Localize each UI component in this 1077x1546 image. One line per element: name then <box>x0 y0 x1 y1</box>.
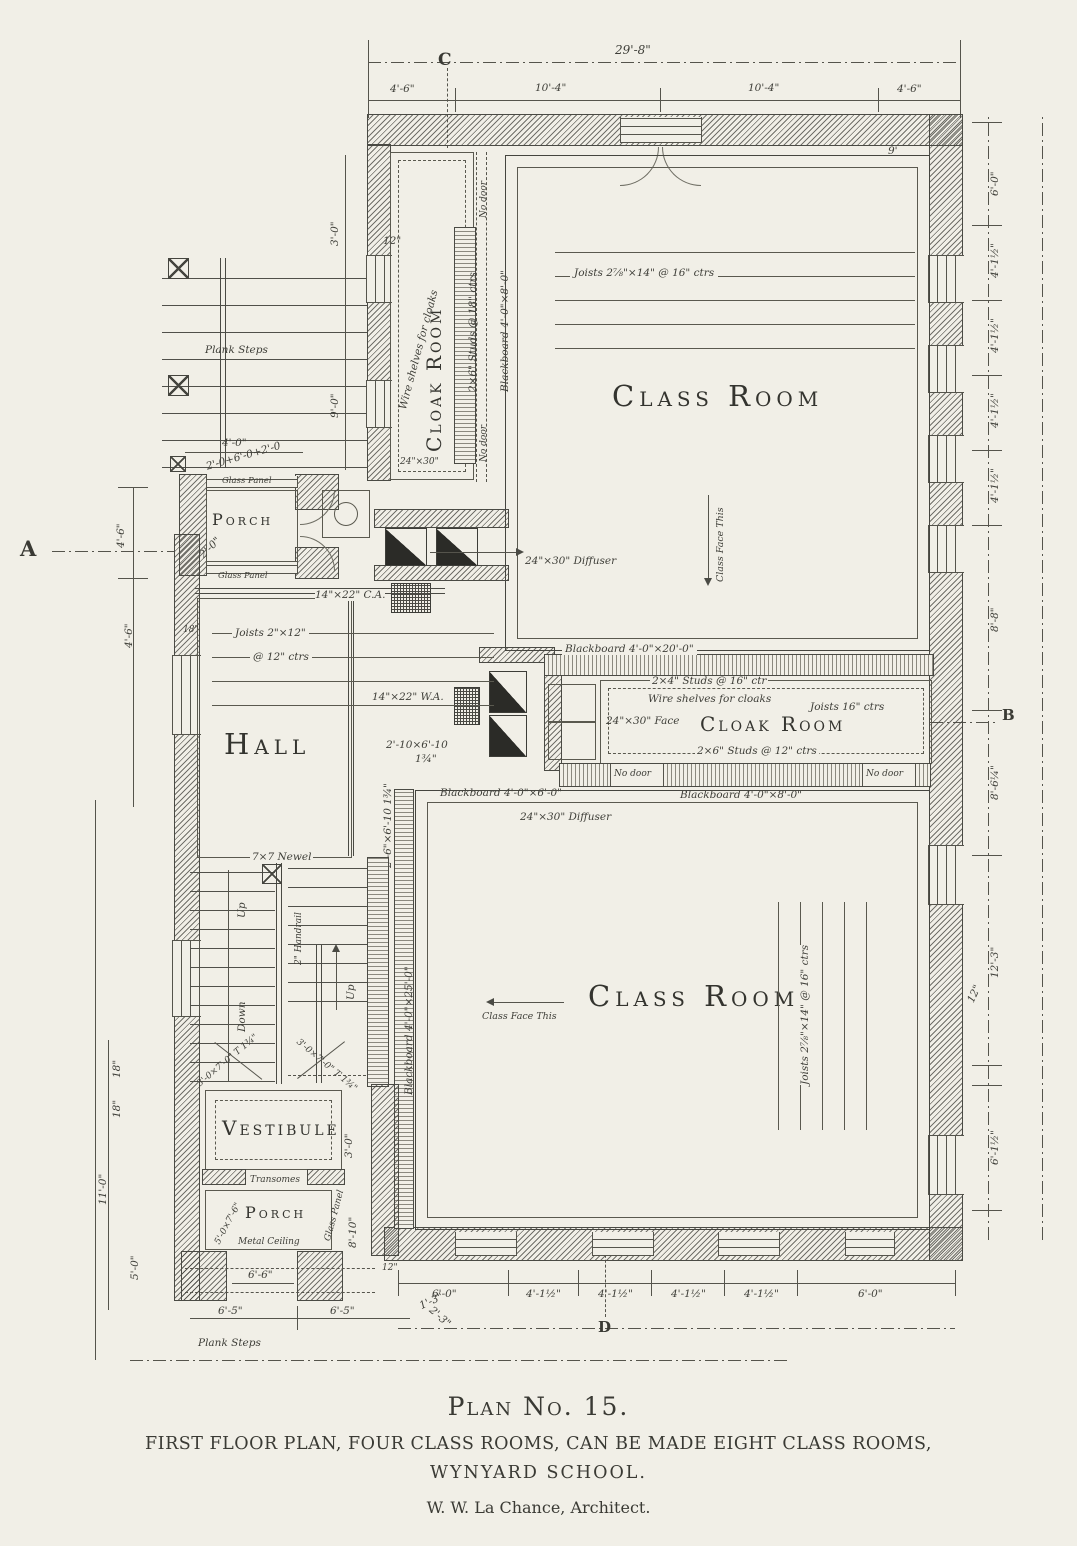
closet-box <box>548 684 596 722</box>
dim-6-6: 6'-6" <box>248 1270 273 1281</box>
dim-line-steps <box>345 155 346 470</box>
dim-line-bottom-overall <box>398 1328 955 1329</box>
dim-2-3: 2'-3" <box>427 1305 452 1329</box>
class-face-bottom: Class Face This <box>482 1012 557 1022</box>
dim-tick <box>972 375 1002 376</box>
room-porch-top: Porch <box>212 512 273 528</box>
dim-line-6-5 <box>190 1318 410 1319</box>
dim-3-0-vestibule: 3'-0" <box>344 1133 355 1158</box>
diffuser-label-top: 24"×30" Diffuser <box>525 556 616 567</box>
step-post <box>170 456 186 472</box>
dim-line-right-overall <box>1042 115 1043 1240</box>
plan-number-title: Plan No. 15. <box>0 1392 1077 1421</box>
wall-left-upper <box>368 145 390 480</box>
door-2-10: 2'-10×6'-10 <box>386 740 448 751</box>
dim-top-4: 4'-6" <box>897 84 922 95</box>
class-face-arrow-top <box>708 495 709 580</box>
down-label: Down <box>237 1002 248 1033</box>
basement-window <box>592 1232 654 1256</box>
section-marker-c: C <box>438 50 452 70</box>
dim-tick <box>118 487 148 488</box>
dim-line-left-outer <box>95 800 96 1360</box>
dim-bottom-3: 4'-1½" <box>598 1289 633 1300</box>
plank-steps-label-bottom: Plank Steps <box>198 1338 261 1349</box>
joists-16: Joists 16" ctrs <box>810 702 884 713</box>
furnace-wall <box>375 510 508 527</box>
dim-line-6-6 <box>232 1283 294 1284</box>
newel-label: 7×7 Newel <box>250 852 313 863</box>
section-marker-a: A <box>20 536 36 561</box>
transomes-label: Transomes <box>250 1176 300 1185</box>
joist-lines-top <box>555 237 915 349</box>
plan-subtitle-line1: FIRST FLOOR PLAN, FOUR CLASS ROOMS, CAN … <box>0 1434 1077 1454</box>
dim-bottom-5: 4'-1½" <box>744 1289 779 1300</box>
window <box>366 255 392 303</box>
class-face-top: Class Face This <box>716 507 726 582</box>
porch-door-swing <box>300 536 335 571</box>
dim-right-1: 6'-0" <box>990 171 1001 196</box>
basement-window <box>845 1232 895 1256</box>
handrail-label: 2" Handrail <box>295 912 304 965</box>
basement-window <box>718 1232 780 1256</box>
column-circle <box>334 502 358 526</box>
door-thickness: 1¾" <box>415 754 437 765</box>
room-hall: Hall <box>224 730 310 759</box>
hall-joists-1: Joists 2"×12" <box>232 628 309 639</box>
room-class-top: Class Room <box>612 382 823 411</box>
vestibule-porch-wall <box>308 1170 344 1184</box>
flue-shaft <box>437 529 477 565</box>
dim-tick <box>398 1270 399 1296</box>
extension-line <box>368 40 369 118</box>
register-24x30: 24"×30" <box>400 458 439 467</box>
duct-ca: 14"×22" C.A. <box>315 590 385 601</box>
dim-top-2: 10'-4" <box>535 83 566 94</box>
window <box>928 845 964 905</box>
no-door-left-2: No door <box>480 425 489 462</box>
dim-right-wall-12: 12" <box>966 984 983 1005</box>
dim-right-9: 6'-1½" <box>990 1130 1001 1165</box>
dim-tick <box>972 855 1002 856</box>
dim-line-right-bays <box>988 115 989 1240</box>
room-cloak-mid: Cloak Room <box>700 714 845 734</box>
arrowhead-down <box>704 578 712 586</box>
dim-tick <box>578 1270 579 1296</box>
wood-wall-stairs <box>368 858 388 1086</box>
class-joists-bottom: Joists 2⅞"×14" @ 16" ctrs <box>800 945 811 1085</box>
dim-left-2: 4'-6" <box>124 623 135 648</box>
dim-bottom-2: 4'-1½" <box>526 1289 561 1300</box>
wall-vestibule-right <box>372 1085 398 1255</box>
section-marker-b: B <box>1002 706 1015 724</box>
dim-tick <box>972 300 1002 301</box>
dim-6-5-right: 6'-5" <box>330 1306 355 1317</box>
dim-tick <box>660 88 661 112</box>
up-label-left: Up <box>237 902 248 918</box>
entrance-opening <box>620 117 702 143</box>
blackboard-25: Blackboard 4'-0"×25'-0" <box>404 966 415 1095</box>
architect-credit: W. W. La Chance, Architect. <box>0 1498 1077 1517</box>
dim-tick <box>972 1065 1002 1066</box>
dim-9-0-steps: 9'-0" <box>330 393 341 418</box>
glass-panel-label-top: Glass Panel <box>222 477 272 486</box>
dim-overall-width: 29'-8" <box>615 44 651 56</box>
no-door-mid-2: No door <box>866 770 903 779</box>
basement-window <box>455 1232 517 1256</box>
dim-left-11-0: 11'-0" <box>98 1174 109 1205</box>
window <box>928 1135 964 1195</box>
dim-tick <box>972 1085 1002 1086</box>
class-face-arrow-bottom <box>492 1002 564 1003</box>
up-label-right: Up <box>346 984 357 1000</box>
step-post <box>168 258 189 279</box>
studs-2x4-16: 2×4" Studs @ 16" ctr <box>650 676 768 687</box>
dim-tick <box>797 1270 798 1296</box>
wood-wall-blackboard-20 <box>545 655 933 675</box>
dim-tick <box>878 88 879 112</box>
furnace-wall <box>375 566 508 580</box>
wire-shelves-mid: Wire shelves for cloaks <box>648 694 771 705</box>
window <box>928 435 964 483</box>
floor-plan-sheet: 29'-8" 4'-6" 10'-4" 10'-4" 4'-6" C 9' 6'… <box>0 0 1077 1546</box>
dim-bottom-4: 4'-1½" <box>671 1289 706 1300</box>
dim-tick <box>972 1210 1002 1211</box>
room-porch-bottom: Porch <box>245 1205 306 1221</box>
dim-bottom-6: 6'-0" <box>858 1289 883 1300</box>
dim-tick <box>955 1270 956 1296</box>
dim-6-5-left: 6'-5" <box>218 1306 243 1317</box>
room-vestibule: Vestibule <box>222 1118 340 1138</box>
dim-line-overall-top <box>368 62 961 63</box>
plan-subtitle-line2: WYNYARD SCHOOL. <box>0 1463 1077 1483</box>
dim-right-8: 12'-3" <box>990 947 1001 978</box>
arrowhead-right <box>516 548 524 556</box>
window <box>928 525 964 573</box>
door-2-6: 2'-6"×6'-10 1¾" <box>383 783 394 868</box>
dim-tick <box>972 710 1002 711</box>
dim-12-porch: 12" <box>382 1264 398 1273</box>
dim-right-5: 4'-1½" <box>990 468 1001 503</box>
blackboard-20: Blackboard 4'-0"×20'-0" <box>562 644 697 655</box>
room-class-bottom: Class Room <box>588 982 799 1011</box>
dim-right-2: 4'-1½" <box>990 243 1001 278</box>
hall-joists-2: @ 12" ctrs <box>250 652 312 663</box>
section-marker-d: D <box>598 1318 611 1336</box>
flue-shaft <box>386 529 426 565</box>
glass-panel-label-bottom: Glass Panel <box>218 572 268 581</box>
dim-top-3: 10'-4" <box>748 83 779 94</box>
dim-right-4: 4'-1½" <box>990 393 1001 428</box>
no-door-mid-1: No door <box>614 770 651 779</box>
face-24x30: 24"×30" Face <box>606 716 679 727</box>
dim-tick <box>972 450 1002 451</box>
dim-4-0: 4'-0" <box>222 438 247 449</box>
plank-steps-bottom-line <box>185 1292 375 1293</box>
dim-tick <box>972 225 1002 226</box>
plank-steps-lines <box>162 252 368 468</box>
stair-arrow-right <box>336 950 337 1010</box>
dim-right-7: 8'-6¼" <box>990 765 1001 800</box>
window <box>928 345 964 393</box>
flue-shaft <box>490 716 526 756</box>
metal-ceiling-label: Metal Ceiling <box>238 1238 300 1247</box>
porch-pier <box>180 475 206 575</box>
closet-box <box>548 722 596 760</box>
arrowhead-up <box>332 944 340 952</box>
dim-8-10: 8'-10" <box>348 1217 359 1248</box>
plank-steps-label-top: Plank Steps <box>205 345 268 356</box>
newel-post <box>262 864 282 884</box>
duct-wa: 14"×22" W.A. <box>372 692 444 703</box>
dim-line-top-bays <box>368 100 961 101</box>
dim-left-18a: 18" <box>112 1060 123 1078</box>
dim-line-bottom-bays <box>398 1283 955 1284</box>
arrowhead-left <box>486 998 494 1006</box>
dim-top-1: 4'-6" <box>390 84 415 95</box>
vestibule-porch-wall <box>203 1170 245 1184</box>
dim-left-1: 4'-6" <box>116 523 127 548</box>
dim-line-wing-overall <box>130 1360 790 1361</box>
dim-3-0-steps: 3'-0" <box>330 221 341 246</box>
dim-18-wall: 18" <box>183 626 199 635</box>
step-post <box>168 375 189 396</box>
dim-tick <box>118 578 148 579</box>
diffuser-arrow-line <box>430 552 518 553</box>
dim-tick <box>297 1306 298 1330</box>
extension-line <box>960 40 961 118</box>
dim-tick <box>651 1270 652 1296</box>
dim-tick <box>455 88 456 112</box>
dim-right-6: 8'-8" <box>990 607 1001 632</box>
door-3-0-right: 3'-0×7'-0" T 1¾" <box>294 1038 358 1094</box>
no-door-left-1: No door <box>480 181 489 218</box>
stair-arrow-left <box>228 870 229 1082</box>
studs-2x6-12: 2×6" Studs @ 12" ctrs <box>695 746 819 757</box>
stair-stringer <box>276 862 282 1084</box>
window <box>928 255 964 303</box>
dim-left-5-0: 5'-0" <box>130 1255 141 1280</box>
flue-shaft <box>490 672 526 712</box>
dim-tick <box>508 1270 509 1296</box>
dim-tick <box>724 1270 725 1296</box>
dim-tick <box>972 122 1002 123</box>
dim-right-3: 4'-1½" <box>990 318 1001 353</box>
joist-lines-bottom <box>778 902 878 1130</box>
section-line-a <box>52 551 174 552</box>
window <box>366 380 392 428</box>
dim-tick <box>972 525 1002 526</box>
dim-left-18b: 18" <box>112 1100 123 1118</box>
studs-2x6-18: 2×6" Studs @ 18" ctrs <box>468 272 479 392</box>
class-joists-top: Joists 2⅞"×14" @ 16" ctrs <box>570 268 718 279</box>
plank-steps-bottom-line <box>185 1268 375 1269</box>
